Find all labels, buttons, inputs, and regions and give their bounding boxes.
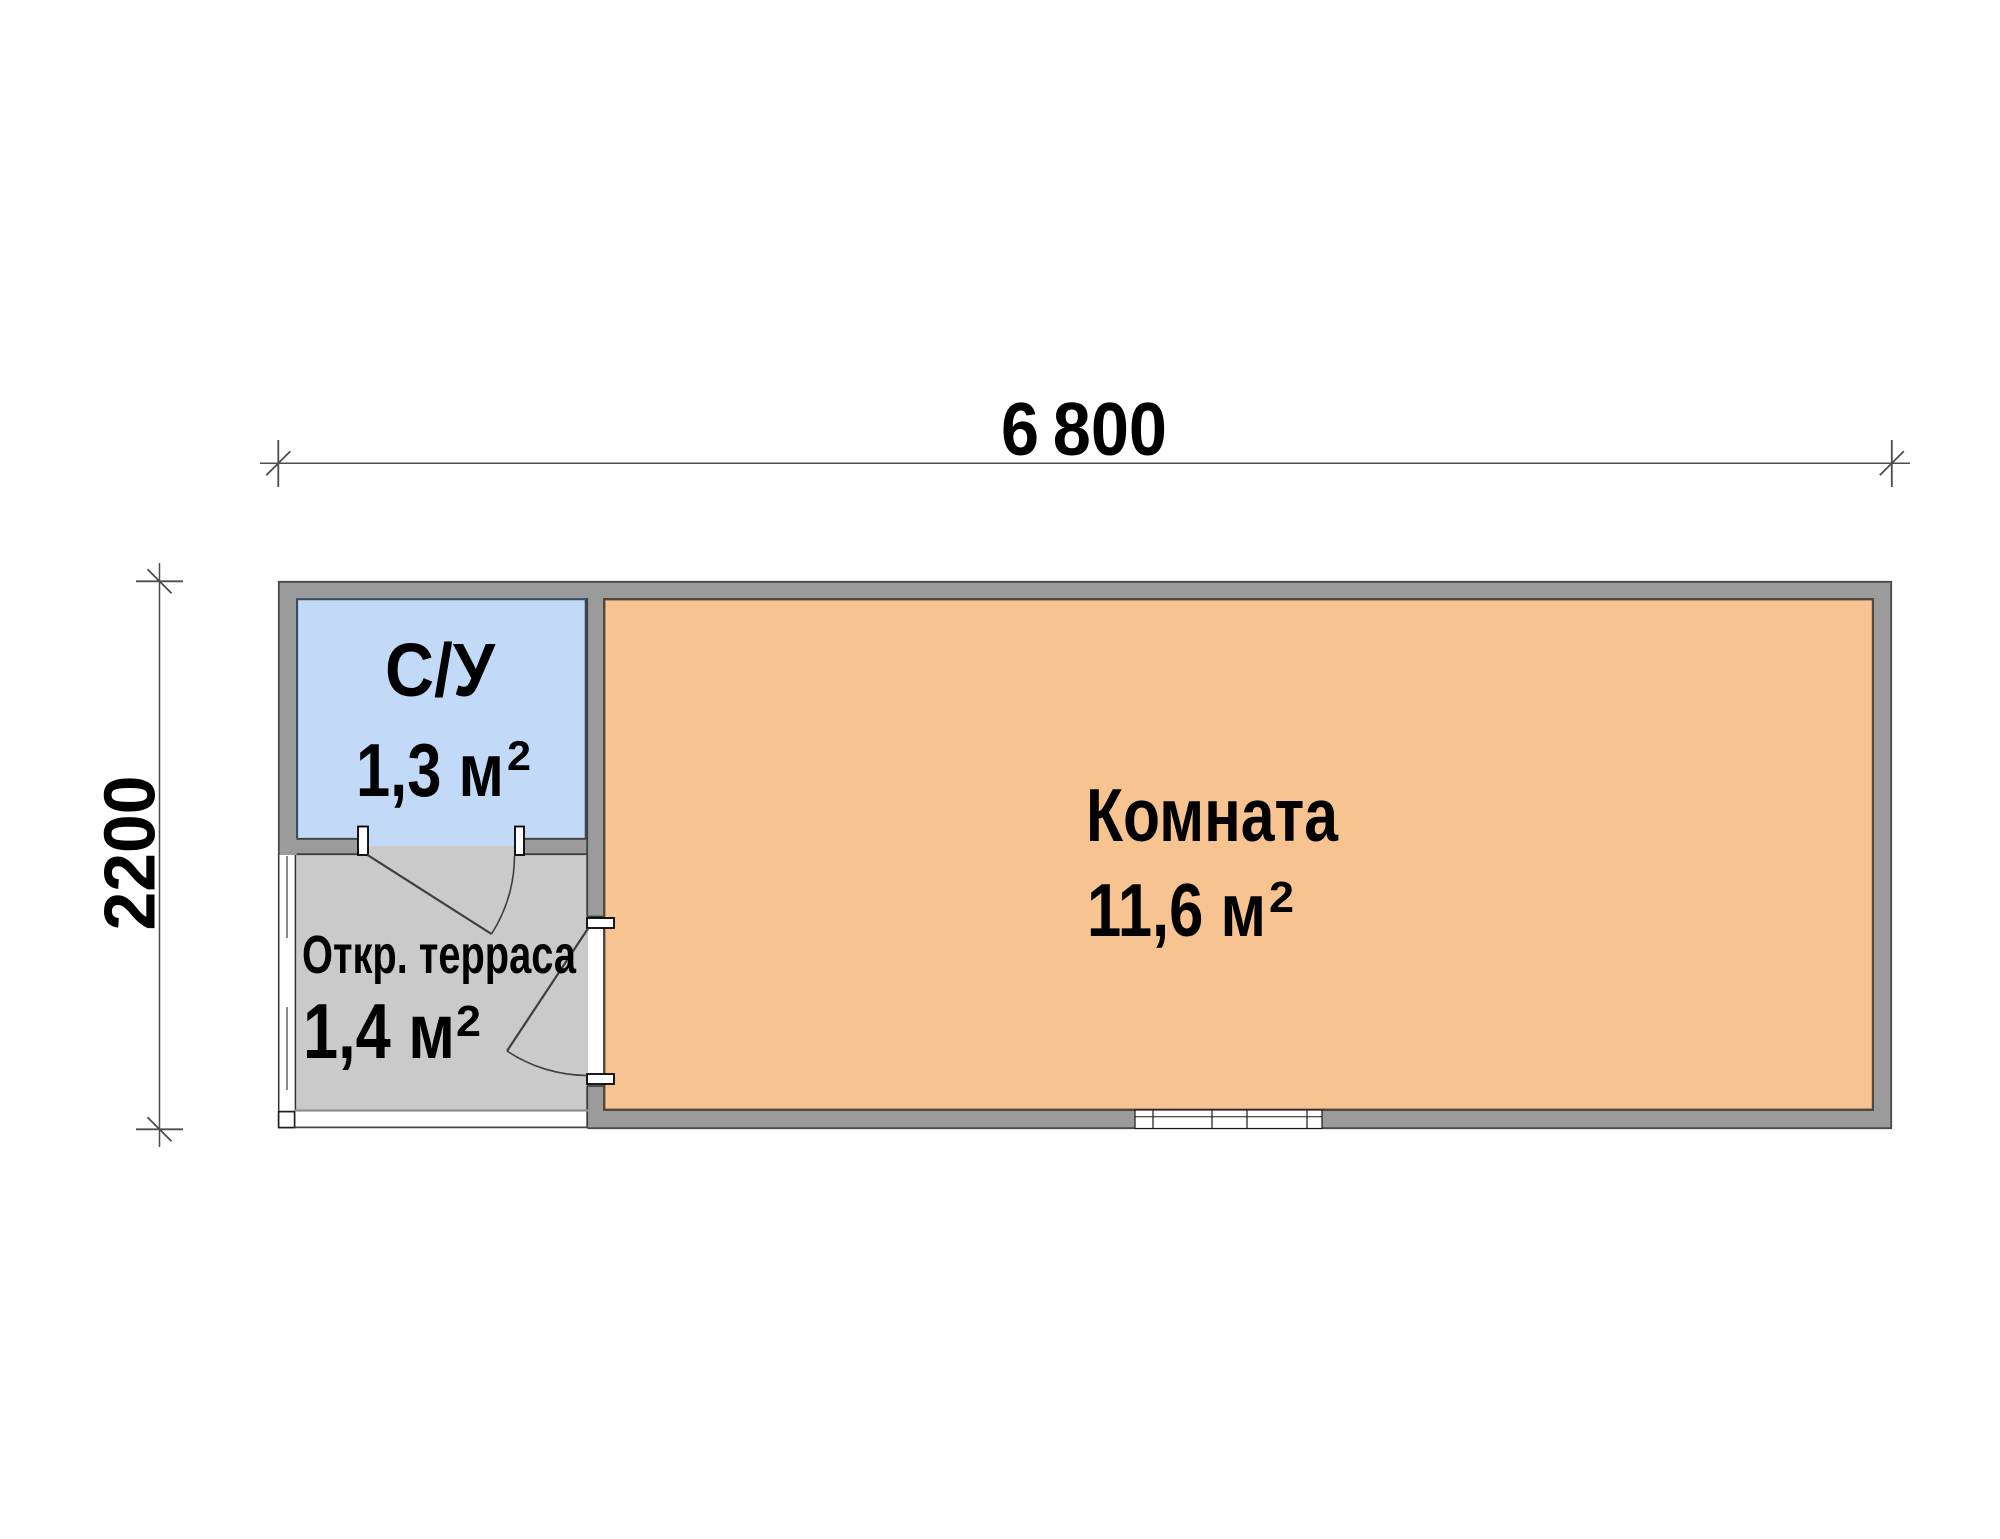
- svg-text:2200: 2200: [91, 776, 171, 931]
- svg-text:С/У: С/У: [385, 628, 496, 712]
- svg-text:2: 2: [1269, 873, 1294, 922]
- svg-text:2: 2: [456, 997, 481, 1046]
- svg-text:6 800: 6 800: [1001, 387, 1167, 471]
- svg-text:Откр. терраса: Откр. терраса: [302, 925, 577, 985]
- svg-text:1,3 м: 1,3 м: [356, 728, 504, 812]
- svg-text:2: 2: [507, 732, 531, 779]
- svg-text:11,6 м: 11,6 м: [1087, 868, 1266, 952]
- svg-text:1,4 м: 1,4 м: [303, 987, 455, 1075]
- svg-text:Комната: Комната: [1086, 773, 1339, 857]
